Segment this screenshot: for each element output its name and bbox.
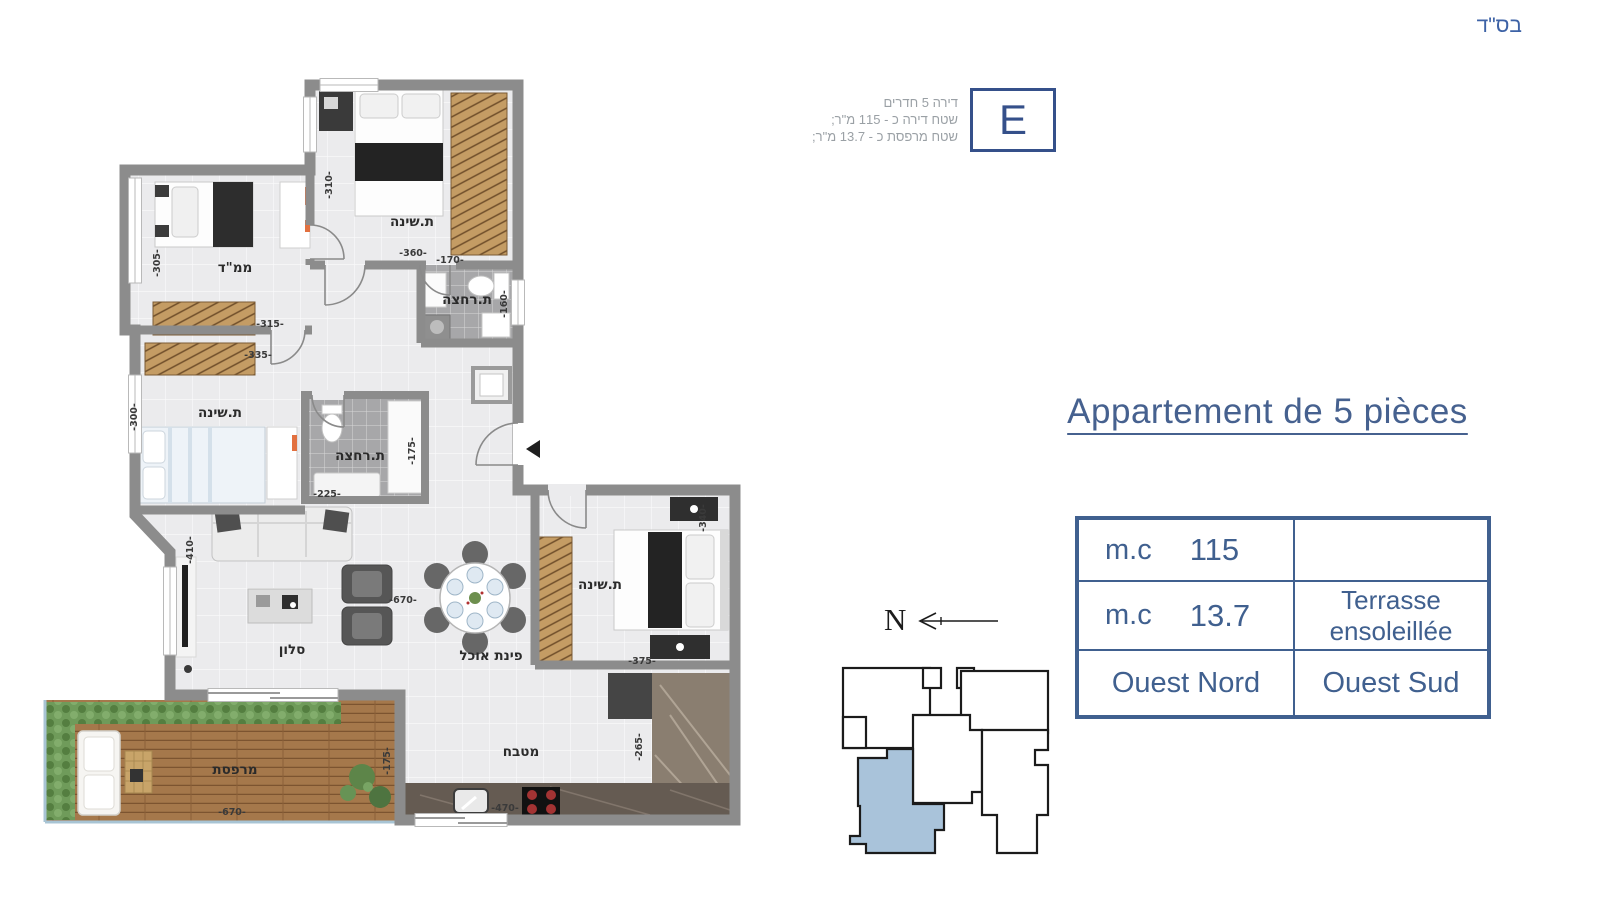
room-label: ממ"ד [218, 260, 253, 276]
sliding-door-icon [415, 814, 507, 827]
dim-label: -340- [698, 504, 709, 532]
dim-label: -470- [491, 803, 519, 814]
dim-label: -310- [324, 171, 335, 199]
armchair-icon [342, 607, 392, 645]
armchair-icon [342, 565, 392, 603]
dim-label: -225- [313, 489, 341, 500]
key-unit [982, 730, 1048, 853]
spec-cell-orientation-right: Ouest Sud [1294, 650, 1488, 716]
bsd-text: בס"ד [1430, 14, 1522, 38]
toilet-tank [322, 405, 342, 414]
double-bed-icon [614, 530, 728, 630]
spec-table: m.c 115 m.c 13.7 Terrasse ensoleillée Ou… [1075, 516, 1491, 719]
dim-label: -175- [407, 437, 418, 465]
wardrobe-icon [145, 343, 255, 375]
building-key-plan [828, 648, 1053, 863]
fridge-icon [608, 673, 652, 719]
terrace-word-1: Terrasse [1341, 585, 1441, 615]
entry-arrow-icon [526, 440, 540, 458]
window-icon [304, 97, 317, 152]
unit-info-lines: דירה 5 חדרים שטח דירה כ - 115 מ"ר; שטח מ… [800, 88, 958, 145]
room-label: מרפסת [212, 762, 257, 778]
dim-label: -315- [256, 319, 284, 330]
terrace-hedge-left [45, 702, 75, 820]
north-arrow-icon [912, 608, 1004, 634]
room-label: ת.שינה [578, 577, 622, 593]
floorplan-page: ת.שינה ממ"ד ת.רחצה ת.שינה ת.רחצה סלון פי… [0, 0, 1600, 900]
unit-info-line: שטח דירה כ - 115 מ"ר; [800, 111, 958, 128]
key-unit [961, 671, 1048, 733]
unit-letter-badge: E [970, 88, 1056, 152]
dim-label: -265- [634, 733, 645, 761]
window-icon [164, 567, 177, 655]
key-unit [843, 717, 866, 748]
toilet-icon [322, 414, 342, 442]
wardrobe-icon [538, 537, 572, 665]
terrace-area-value: 13.7 [1190, 598, 1250, 634]
sliding-door-icon [208, 689, 338, 702]
spec-cell-area: m.c 115 [1078, 519, 1294, 581]
unit-info-line: דירה 5 חדרים [800, 94, 958, 111]
dim-label: -375- [628, 656, 656, 667]
window-icon [129, 178, 142, 283]
dim-label: -335- [244, 350, 272, 361]
terrace-hedge-top [58, 702, 341, 724]
spec-cell-empty [1294, 519, 1488, 581]
north-label: N [884, 602, 906, 638]
terrace-rug [125, 751, 152, 793]
spec-cell-orientation-left: Ouest Nord [1078, 650, 1294, 716]
terrace-word-2: ensoleillée [1330, 616, 1453, 646]
window-icon [320, 79, 378, 92]
room-label: ת.רחצה [442, 292, 492, 308]
dim-label: -670- [389, 595, 417, 606]
room-label: ת.רחצה [335, 448, 385, 464]
utility-shaft [473, 368, 510, 402]
window-icon [512, 280, 525, 325]
sofa-icon [212, 507, 352, 561]
floor-plan: ת.שינה ממ"ד ת.רחצה ת.שינה ת.רחצה סלון פי… [30, 75, 750, 835]
mc-label: m.c [1105, 534, 1152, 567]
room-label: מטבח [503, 744, 539, 760]
dim-label: -300- [129, 403, 140, 431]
room-label: ת.שינה [198, 405, 242, 421]
terrace-lounge-sofa [78, 731, 120, 815]
key-unit [923, 668, 941, 688]
coffee-table-icon [248, 589, 312, 623]
double-bed-icon [140, 427, 265, 503]
dim-label: -670- [218, 807, 246, 818]
unit-info-block: דירה 5 חדרים שטח דירה כ - 115 מ"ר; שטח מ… [800, 88, 1056, 152]
wardrobe-icon [451, 93, 507, 255]
page-title: Appartement de 5 pièces [1010, 392, 1525, 432]
room-label: ת.שינה [390, 214, 434, 230]
dim-label: -360- [399, 248, 427, 259]
area-value: 115 [1190, 532, 1239, 568]
tv-icon [182, 565, 188, 647]
spec-cell-terrace-area: m.c 13.7 [1078, 581, 1294, 650]
unit-info-line: שטח מרפסת כ - 13.7 מ"ר; [800, 128, 958, 145]
double-bed-icon [355, 90, 443, 216]
terrace-area [45, 700, 396, 822]
single-bed-icon [155, 182, 253, 247]
dim-label: -175- [382, 747, 393, 775]
dim-label: -170- [436, 255, 464, 266]
room-label: סלון [279, 642, 306, 658]
mc-label: m.c [1105, 599, 1152, 632]
dim-label: -305- [152, 249, 163, 277]
dim-label: -410- [185, 536, 196, 564]
room-label: פינת אוכל [459, 648, 522, 664]
spec-cell-terrace-label: Terrasse ensoleillée [1294, 581, 1488, 650]
dim-label: -160- [499, 290, 510, 318]
